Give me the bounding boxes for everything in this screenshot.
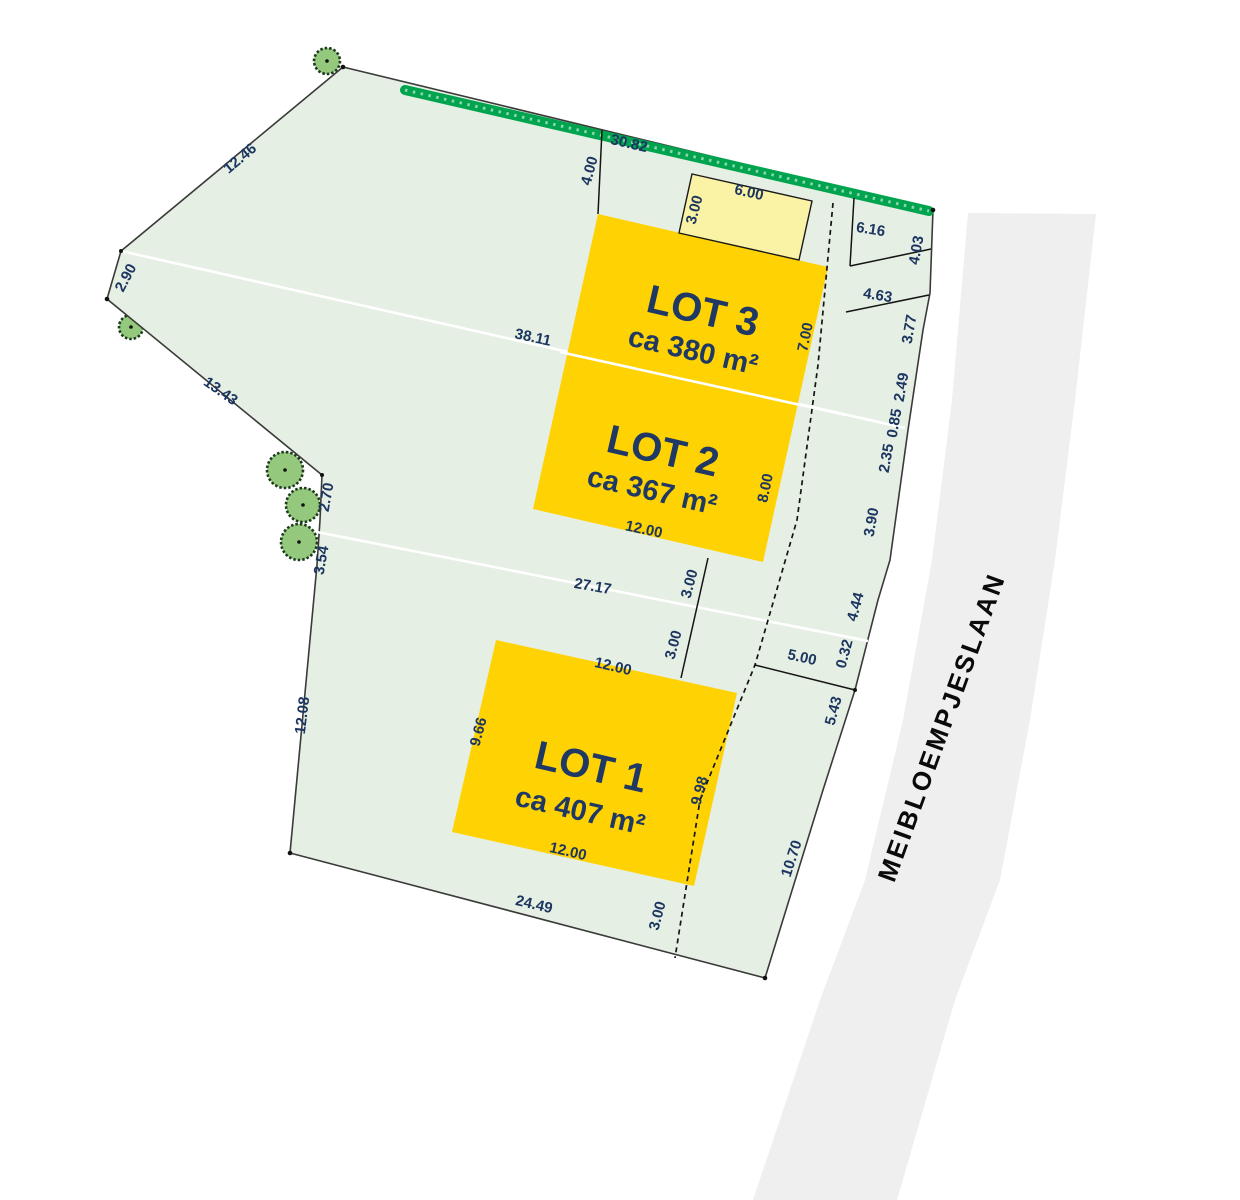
site-plan-svg: 12.46 2.90 13.43 38.11 30.82 4.00 3.00 6… xyxy=(0,0,1240,1200)
corner-tree-top xyxy=(314,48,340,74)
tree-group-left xyxy=(267,452,320,560)
site-plan-page: 12.46 2.90 13.43 38.11 30.82 4.00 3.00 6… xyxy=(0,0,1240,1200)
